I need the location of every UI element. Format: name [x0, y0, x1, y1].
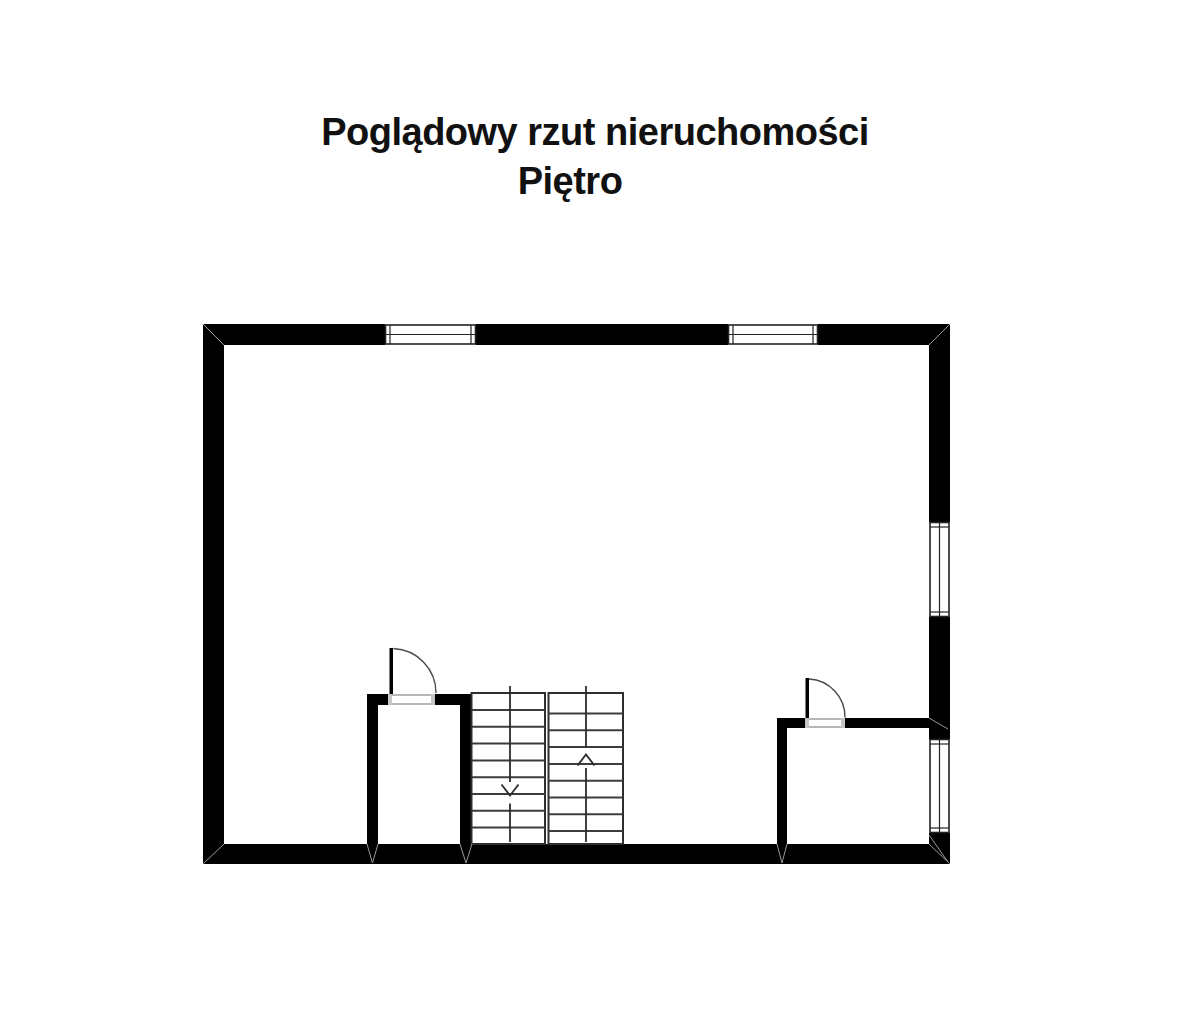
- stairwell-room: [367, 648, 472, 844]
- bottom-right-room: [777, 678, 929, 844]
- wall-right-segment: [929, 617, 950, 739]
- stairs-flight-down: [472, 686, 546, 844]
- stairs-flight-up: [549, 686, 624, 844]
- wall-right-segment: [929, 833, 950, 864]
- door-jamb: [388, 694, 392, 705]
- floor-plan-drawing: [0, 0, 1200, 1033]
- door-jamb: [431, 694, 435, 705]
- door-leaf: [390, 648, 394, 694]
- window-top-left: [386, 325, 476, 344]
- room-wall-left: [777, 718, 787, 844]
- stairs-flight-outline: [472, 693, 546, 844]
- staircase: [472, 686, 624, 844]
- door-leaf: [806, 678, 810, 718]
- room-wall-top-segment: [777, 718, 805, 728]
- wall-top-segment: [203, 324, 385, 345]
- window-right-upper: [930, 523, 949, 617]
- wall-bottom: [203, 844, 950, 864]
- room-wall-left: [367, 694, 378, 844]
- room-wall-top-segment: [845, 718, 929, 728]
- window-top-right: [729, 325, 818, 344]
- door-jamb: [841, 718, 845, 728]
- door-swing-arc: [394, 649, 437, 694]
- wall-top-segment: [476, 324, 728, 345]
- door-swing-arc: [809, 679, 845, 718]
- wall-left: [203, 324, 224, 864]
- door-threshold: [388, 694, 435, 705]
- wall-right-segment: [929, 324, 950, 522]
- door-jamb: [805, 718, 809, 728]
- room-wall-top-segment: [367, 694, 388, 705]
- room-wall-right: [460, 694, 472, 844]
- window-right-lower: [930, 740, 949, 833]
- floor-plan-page: Poglądowy rzut nieruchomości Piętro: [0, 0, 1200, 1033]
